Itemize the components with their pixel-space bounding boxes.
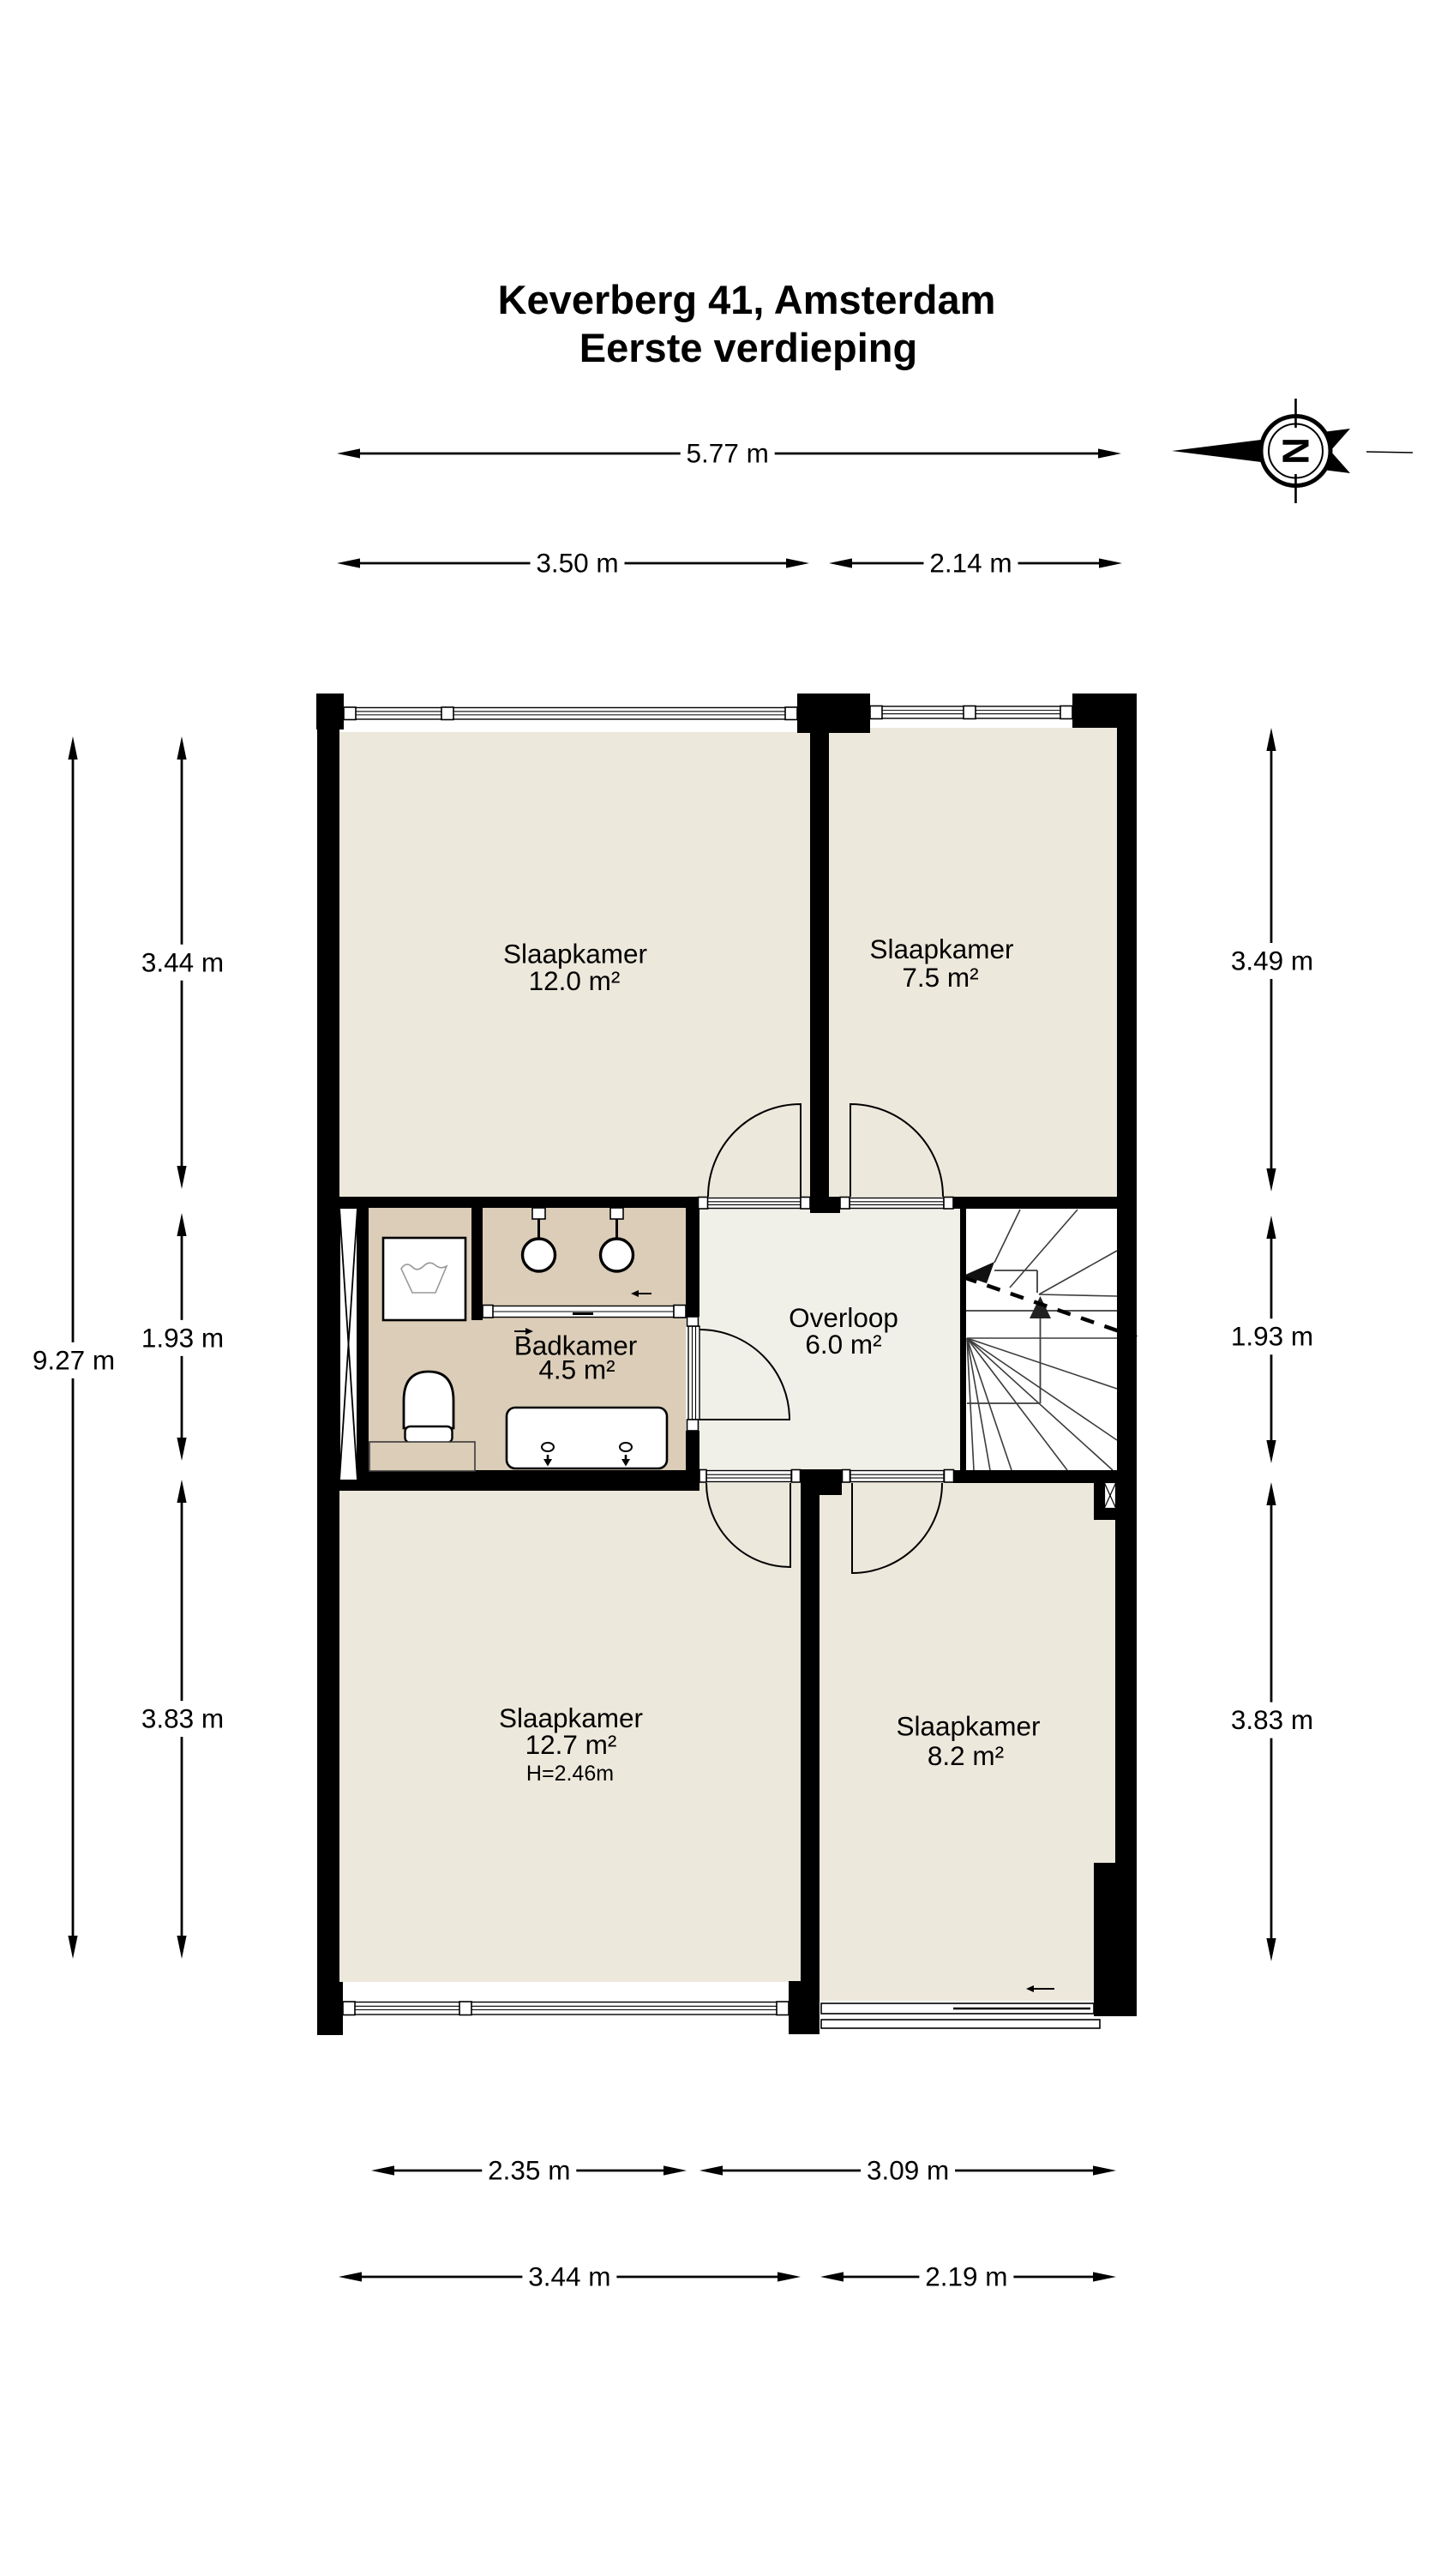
svg-text:3.44 m: 3.44 m: [528, 2261, 610, 2292]
svg-text:1.93 m: 1.93 m: [141, 1322, 224, 1353]
svg-text:12.0 m²: 12.0 m²: [529, 965, 621, 996]
svg-text:7.5 m²: 7.5 m²: [902, 962, 978, 993]
svg-text:3.83 m: 3.83 m: [1231, 1704, 1313, 1735]
svg-text:8.2 m²: 8.2 m²: [928, 1740, 1004, 1771]
svg-text:Eerste verdieping: Eerste verdieping: [579, 325, 917, 370]
svg-text:Slaapkamer: Slaapkamer: [869, 934, 1013, 964]
svg-text:Slaapkamer: Slaapkamer: [896, 1711, 1040, 1742]
svg-text:2.19 m: 2.19 m: [925, 2261, 1007, 2292]
svg-text:3.50 m: 3.50 m: [536, 548, 618, 579]
svg-text:3.83 m: 3.83 m: [141, 1703, 224, 1734]
svg-text:2.14 m: 2.14 m: [929, 548, 1012, 579]
svg-text:9.27 m: 9.27 m: [33, 1344, 115, 1375]
svg-text:6.0 m²: 6.0 m²: [805, 1329, 881, 1360]
svg-text:3.09 m: 3.09 m: [867, 2155, 949, 2186]
svg-text:3.44 m: 3.44 m: [141, 946, 224, 977]
svg-text:3.49 m: 3.49 m: [1231, 946, 1313, 976]
svg-text:2.35 m: 2.35 m: [488, 2155, 570, 2186]
svg-text:1.93 m: 1.93 m: [1231, 1321, 1313, 1352]
svg-text:4.5 m²: 4.5 m²: [538, 1354, 615, 1385]
svg-text:N: N: [1276, 437, 1318, 465]
svg-text:5.77 m: 5.77 m: [687, 438, 769, 469]
svg-text:H=2.46m: H=2.46m: [526, 1762, 614, 1786]
svg-text:12.7 m²: 12.7 m²: [525, 1729, 617, 1760]
svg-text:Keverberg 41, Amsterdam: Keverberg 41, Amsterdam: [498, 277, 996, 322]
